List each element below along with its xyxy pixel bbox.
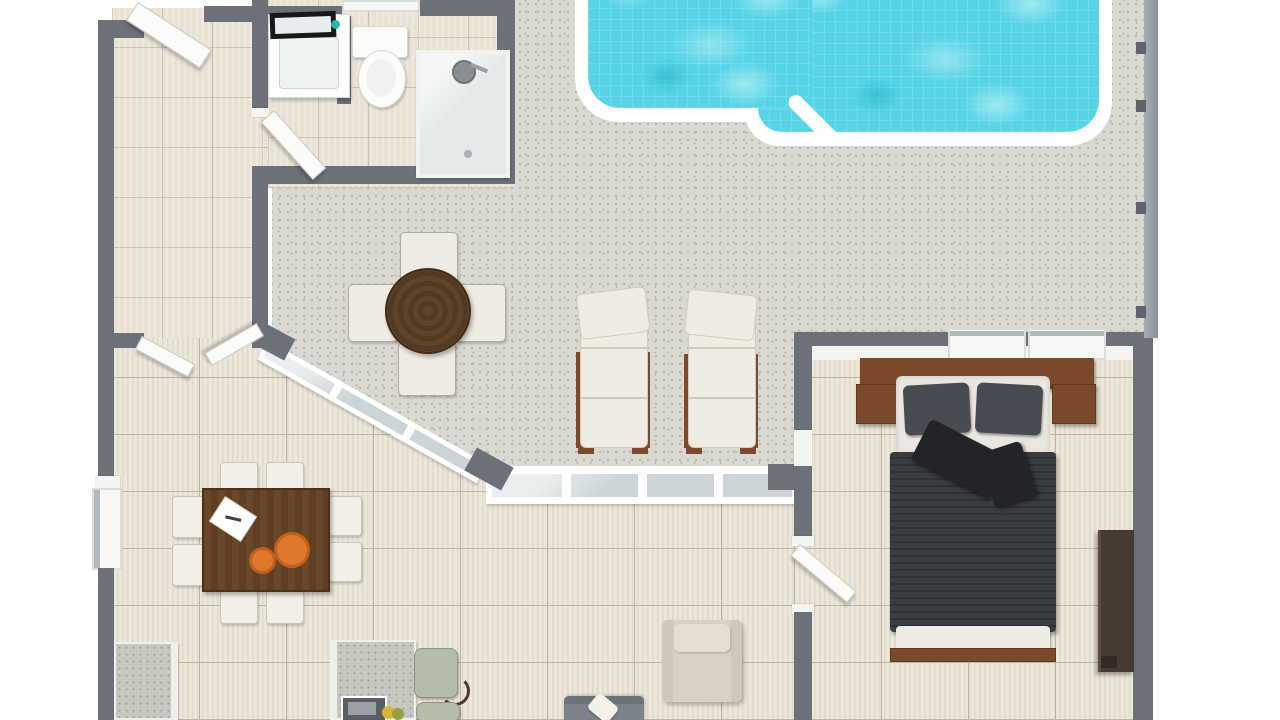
armchair	[662, 620, 742, 702]
wall-utility-right-lower	[252, 166, 268, 348]
fruit-green	[392, 708, 404, 720]
lounger-headrest	[684, 288, 758, 341]
wall-living-bedroom-a	[794, 346, 812, 432]
mirror-glass	[275, 16, 332, 34]
vanity-mirror	[270, 11, 337, 39]
fence-post	[1136, 306, 1146, 318]
fence-post	[1136, 202, 1146, 214]
napkin	[209, 496, 257, 542]
window-bedroom-1	[948, 328, 1026, 360]
kitchen-counter	[114, 642, 178, 720]
floor-plan	[0, 0, 1280, 720]
vanity-basin	[279, 37, 339, 89]
dining-chair-right-2	[328, 542, 362, 582]
window-left-wall	[92, 488, 122, 570]
dining-chair-left-2	[172, 544, 206, 586]
island-sink	[341, 696, 387, 720]
sun-lounger-1	[576, 292, 650, 456]
sliding-door-horizontal	[486, 466, 798, 504]
shower-drain	[464, 150, 472, 158]
wall-bedroom-right	[1133, 332, 1153, 720]
wall-living-bedroom-b	[794, 466, 812, 542]
window-bathroom-top	[342, 0, 420, 12]
bed-footboard	[890, 648, 1056, 662]
nightstand-right	[1052, 384, 1096, 424]
toilet-seat	[366, 59, 396, 97]
soap-accent	[331, 20, 340, 29]
armchair-arm-left	[662, 620, 673, 702]
dining-table	[202, 488, 330, 592]
sun-lounger-2	[684, 294, 758, 456]
dresser	[1098, 530, 1134, 672]
lounger-headrest	[575, 286, 650, 340]
mullion	[714, 472, 723, 499]
wall-left-lower	[98, 568, 114, 720]
dining-chair-bottom-2	[266, 590, 304, 624]
toilet-bowl	[358, 50, 406, 108]
wall-utility-bath-divider	[252, 0, 268, 114]
outdoor-dining-table	[385, 268, 471, 354]
wall-living-bedroom-window	[794, 430, 812, 468]
mullion	[638, 472, 647, 499]
wall-cap	[792, 536, 814, 546]
plate-small	[249, 547, 276, 574]
fruit-bowl	[382, 706, 406, 720]
armchair-arm-right	[731, 620, 742, 702]
fence-post	[1136, 100, 1146, 112]
window-bedroom-2	[1028, 328, 1106, 360]
mullion	[562, 472, 571, 499]
shower	[416, 50, 510, 178]
plate-large	[274, 532, 310, 568]
armchair-back-cushion	[674, 624, 730, 652]
wall-living-bedroom-c	[794, 612, 812, 720]
wall-left-upper	[98, 20, 114, 478]
wall-cap	[96, 476, 120, 488]
pool-water-left	[588, 0, 812, 108]
dining-chair-bottom-1	[220, 590, 258, 624]
dining-chair-right-1	[328, 496, 362, 536]
bar-stool-2	[416, 702, 460, 720]
sofa	[564, 696, 644, 720]
fence-post	[1136, 42, 1146, 54]
dresser-notch	[1101, 656, 1117, 668]
bed-pillow-right	[975, 382, 1044, 435]
pool-fence	[1144, 0, 1158, 338]
dining-chair-left-1	[172, 496, 206, 538]
pen	[225, 515, 241, 522]
sink-basin	[348, 702, 376, 715]
double-bed	[890, 376, 1056, 666]
